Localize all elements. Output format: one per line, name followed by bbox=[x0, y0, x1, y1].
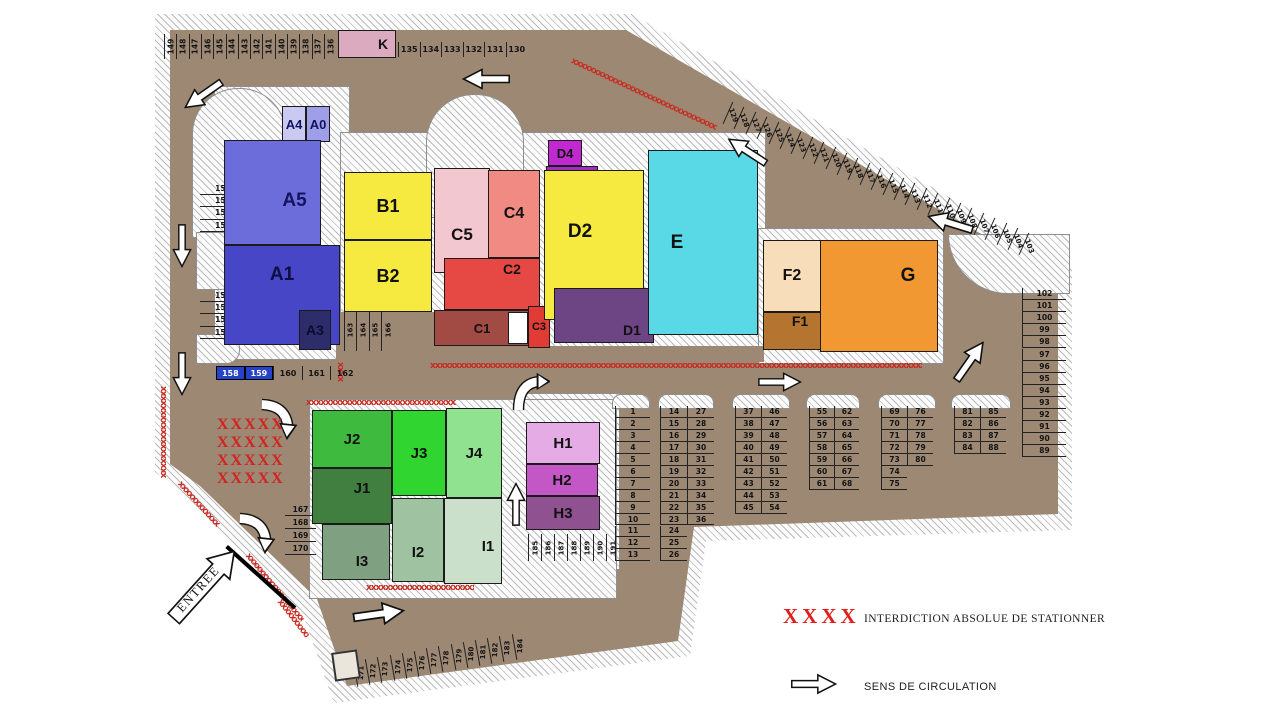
parking-spot-146: 146 bbox=[201, 34, 213, 59]
parking-spot-132: 132 bbox=[463, 42, 485, 57]
parking-spot-158: 158 bbox=[216, 366, 245, 380]
parking-spot-69: 69 bbox=[881, 406, 907, 418]
parking-spot-134: 134 bbox=[420, 42, 442, 57]
parking-spot-24: 24 bbox=[660, 526, 687, 538]
parking-spot-170: 170 bbox=[285, 542, 316, 555]
parking-spot-14: 14 bbox=[660, 406, 687, 418]
building-E: E bbox=[648, 150, 758, 335]
building-label: C1 bbox=[474, 321, 491, 336]
parking-spot-37: 37 bbox=[735, 406, 761, 418]
building-K: K bbox=[338, 30, 396, 58]
parking-spot-9: 9 bbox=[615, 502, 650, 514]
building-label: F1 bbox=[792, 313, 808, 329]
parking-spot-93: 93 bbox=[1022, 397, 1066, 409]
parking-spot-17: 17 bbox=[660, 442, 687, 454]
parking-spot-140: 140 bbox=[275, 34, 287, 59]
parking-spot-38: 38 bbox=[735, 418, 761, 430]
building-H2: H2 bbox=[526, 464, 598, 496]
parking-spot-31: 31 bbox=[687, 454, 714, 466]
parking-spot-130: 130 bbox=[506, 42, 528, 57]
parking-spot-67: 67 bbox=[834, 466, 859, 478]
building-label: F2 bbox=[783, 267, 802, 285]
parking-spot-56: 56 bbox=[809, 418, 834, 430]
parking-spot-137: 137 bbox=[312, 34, 324, 59]
parking-spot-44: 44 bbox=[735, 490, 761, 502]
parking-spot-51: 51 bbox=[761, 466, 787, 478]
building-A5: A5 bbox=[224, 140, 321, 245]
parking-spot-19: 19 bbox=[660, 466, 687, 478]
parking-spot-29: 29 bbox=[687, 430, 714, 442]
no-parking-text-row: XXXXX bbox=[217, 452, 285, 470]
parking-spot-18: 18 bbox=[660, 454, 687, 466]
building-label: A5 bbox=[282, 190, 306, 212]
direction-arrow-icon bbox=[791, 672, 837, 696]
parking-spot-141: 141 bbox=[262, 34, 274, 59]
parking-spot-36: 36 bbox=[687, 514, 714, 526]
parking-spot-62: 62 bbox=[834, 406, 859, 418]
parking-spot-55: 55 bbox=[809, 406, 834, 418]
parking-spot-35: 35 bbox=[687, 502, 714, 514]
parking-spot-87: 87 bbox=[980, 430, 1006, 442]
parking-spot-84: 84 bbox=[954, 442, 980, 454]
building-label: J2 bbox=[344, 431, 361, 448]
parking-spot-185: 185 bbox=[528, 534, 541, 561]
parking-spot-40: 40 bbox=[735, 442, 761, 454]
building-label: I1 bbox=[482, 538, 495, 555]
building-label: D1 bbox=[623, 322, 641, 338]
parking-spot-12: 12 bbox=[615, 537, 650, 549]
parking-spot-163: 163 bbox=[344, 309, 356, 351]
building-J4: J4 bbox=[446, 408, 502, 498]
parking-spot-162: 162 bbox=[330, 366, 359, 380]
parking-spot-72: 72 bbox=[881, 442, 907, 454]
building-C4: C4 bbox=[488, 170, 540, 258]
parking-spot-45: 45 bbox=[735, 502, 761, 514]
parking-spot-27: 27 bbox=[687, 406, 714, 418]
parking-spot-77: 77 bbox=[907, 418, 933, 430]
building-label: C3 bbox=[532, 321, 546, 333]
parking-spot-21: 21 bbox=[660, 490, 687, 502]
parking-spot-89: 89 bbox=[1022, 445, 1066, 457]
parking-spot-39: 39 bbox=[735, 430, 761, 442]
parking-spot-88: 88 bbox=[980, 442, 1006, 454]
parking-spot-71: 71 bbox=[881, 430, 907, 442]
parking-spot-131: 131 bbox=[484, 42, 506, 57]
building-J3: J3 bbox=[392, 410, 446, 496]
legend-direction-label: SENS DE CIRCULATION bbox=[864, 681, 997, 693]
parking-spot-32: 32 bbox=[687, 466, 714, 478]
parking-spot-5: 5 bbox=[615, 454, 650, 466]
no-parking-mark: xxxxxxxxxxxxxxxxxxxxxxxxxxxxxxxxxxxxxxxx… bbox=[430, 362, 922, 371]
parking-spot-57: 57 bbox=[809, 430, 834, 442]
parking-spot-49: 49 bbox=[761, 442, 787, 454]
building-G: G bbox=[820, 240, 938, 352]
parking-spot-28: 28 bbox=[687, 418, 714, 430]
parking-spot-22: 22 bbox=[660, 502, 687, 514]
parking-spot-190: 190 bbox=[593, 534, 606, 561]
building-C2: C2 bbox=[444, 258, 540, 310]
parking-spot-90: 90 bbox=[1022, 433, 1066, 445]
direction-arrow-icon bbox=[506, 476, 526, 532]
parking-spot-58: 58 bbox=[809, 442, 834, 454]
building-label: D2 bbox=[568, 221, 592, 243]
building-label: A4 bbox=[286, 117, 303, 132]
parking-spot-52: 52 bbox=[761, 478, 787, 490]
parking-spot-78: 78 bbox=[907, 430, 933, 442]
parking-spot-91: 91 bbox=[1022, 421, 1066, 433]
parking-spot-81: 81 bbox=[954, 406, 980, 418]
parking-spot-8: 8 bbox=[615, 490, 650, 502]
parking-spot-79: 79 bbox=[907, 442, 933, 454]
no-parking-text-row: XXXXX bbox=[217, 434, 285, 452]
building-J2: J2 bbox=[312, 410, 392, 468]
parking-spot-1: 1 bbox=[615, 406, 650, 418]
building-A3: A3 bbox=[299, 310, 331, 350]
kiosk-structure bbox=[331, 649, 361, 681]
parking-spot-2: 2 bbox=[615, 418, 650, 430]
parking-spot-97: 97 bbox=[1022, 349, 1066, 361]
building-D1: D1 bbox=[554, 288, 654, 343]
parking-spot-48: 48 bbox=[761, 430, 787, 442]
parking-spot-53: 53 bbox=[761, 490, 787, 502]
parking-spot-23: 23 bbox=[660, 514, 687, 526]
building-label: B1 bbox=[376, 196, 399, 217]
building-F2: F2 bbox=[763, 240, 821, 312]
parking-spot-54: 54 bbox=[761, 502, 787, 514]
parking-spot-74: 74 bbox=[881, 466, 907, 478]
building-label: C5 bbox=[451, 225, 473, 245]
building-GAP bbox=[508, 312, 528, 344]
parking-spot-100: 100 bbox=[1022, 312, 1066, 324]
parking-spot-75: 75 bbox=[881, 478, 907, 490]
building-label: J3 bbox=[411, 445, 428, 462]
parking-spot-43: 43 bbox=[735, 478, 761, 490]
no-parking-mark: xxxxxxxxxxxxxxxxxxxxxxxxxxxxxxxxxx bbox=[306, 399, 456, 408]
parking-spot-92: 92 bbox=[1022, 409, 1066, 421]
building-H3: H3 bbox=[526, 496, 600, 530]
parking-spot-138: 138 bbox=[299, 34, 311, 59]
building-I3: I3 bbox=[322, 524, 390, 580]
parking-spot-26: 26 bbox=[660, 549, 687, 561]
parking-spot-160: 160 bbox=[273, 366, 302, 380]
building-B1: B1 bbox=[344, 172, 432, 240]
parking-spot-10: 10 bbox=[615, 514, 650, 526]
building-label: I3 bbox=[356, 553, 369, 570]
building-B2: B2 bbox=[344, 240, 432, 312]
parking-spot-101: 101 bbox=[1022, 300, 1066, 312]
parking-spot-85: 85 bbox=[980, 406, 1006, 418]
parking-spot-25: 25 bbox=[660, 537, 687, 549]
direction-arrow-icon bbox=[508, 370, 550, 412]
parking-spot-61: 61 bbox=[809, 478, 834, 490]
parking-spot-102: 102 bbox=[1022, 288, 1066, 300]
parking-spot-142: 142 bbox=[250, 34, 262, 59]
parking-spot-16: 16 bbox=[660, 430, 687, 442]
legend-no-parking-label: INTERDICTION ABSOLUE DE STATIONNER bbox=[864, 613, 1105, 625]
building-label: C2 bbox=[503, 261, 521, 277]
parking-spot-30: 30 bbox=[687, 442, 714, 454]
parking-spot-187: 187 bbox=[554, 534, 567, 561]
building-label: H1 bbox=[553, 435, 572, 452]
parking-spot-34: 34 bbox=[687, 490, 714, 502]
building-A0: A0 bbox=[306, 106, 330, 142]
building-I2: I2 bbox=[392, 498, 444, 582]
parking-spot-76: 76 bbox=[907, 406, 933, 418]
parking-spot-165: 165 bbox=[369, 309, 381, 351]
parking-spot-70: 70 bbox=[881, 418, 907, 430]
no-parking-text-row: XXXXX bbox=[217, 416, 285, 434]
parking-spot-166: 166 bbox=[381, 309, 393, 351]
building-label: E bbox=[671, 232, 684, 254]
parking-spot-11: 11 bbox=[615, 526, 650, 538]
building-label: H2 bbox=[552, 472, 571, 489]
building-J1: J1 bbox=[312, 468, 392, 524]
direction-arrow-icon bbox=[172, 352, 192, 396]
parking-spot-80: 80 bbox=[907, 454, 933, 466]
parking-spot-4: 4 bbox=[615, 442, 650, 454]
parking-spot-63: 63 bbox=[834, 418, 859, 430]
parking-spot-136: 136 bbox=[324, 34, 336, 59]
parking-spot-95: 95 bbox=[1022, 373, 1066, 385]
building-label: A1 bbox=[270, 264, 294, 286]
building-label: K bbox=[378, 36, 388, 52]
building-label: I2 bbox=[412, 544, 425, 561]
parking-spot-161: 161 bbox=[302, 366, 331, 380]
no-parking-mark: xxxxxxxxxxxxxxxxxxxxxxxx bbox=[366, 584, 474, 593]
no-parking-mark: xxxxxxxxxxxxxxxxxxxxx bbox=[158, 386, 167, 478]
road-under-c1 bbox=[430, 346, 764, 362]
building-I1: I1 bbox=[444, 498, 502, 584]
parking-spot-94: 94 bbox=[1022, 385, 1066, 397]
parking-spot-15: 15 bbox=[660, 418, 687, 430]
parking-spot-133: 133 bbox=[441, 42, 463, 57]
building-label: J4 bbox=[466, 445, 483, 462]
building-label: A0 bbox=[310, 117, 327, 132]
building-label: C4 bbox=[504, 205, 524, 223]
no-parking-text-row: XXXXX bbox=[217, 470, 285, 488]
parking-spot-33: 33 bbox=[687, 478, 714, 490]
parking-spot-143: 143 bbox=[238, 34, 250, 59]
building-label: B2 bbox=[376, 266, 399, 287]
parking-spot-46: 46 bbox=[761, 406, 787, 418]
parking-spot-98: 98 bbox=[1022, 336, 1066, 348]
building-A4: A4 bbox=[282, 106, 306, 142]
parking-spot-169: 169 bbox=[285, 529, 316, 542]
parking-spot-149: 149 bbox=[164, 34, 176, 59]
parking-spot-7: 7 bbox=[615, 478, 650, 490]
parking-spot-82: 82 bbox=[954, 418, 980, 430]
parking-spot-144: 144 bbox=[226, 34, 238, 59]
parking-spot-73: 73 bbox=[881, 454, 907, 466]
direction-arrow-icon bbox=[758, 372, 802, 392]
parking-spot-135: 135 bbox=[398, 42, 420, 57]
site-plan: xxxxxxxxxxxxxxxxxxxxxxxxxxxxxxxxxxxxxxxx… bbox=[0, 0, 1280, 720]
parking-spot-64: 64 bbox=[834, 430, 859, 442]
parking-spot-186: 186 bbox=[541, 534, 554, 561]
direction-arrow-icon bbox=[236, 506, 284, 556]
parking-spot-139: 139 bbox=[287, 34, 299, 59]
parking-spot-68: 68 bbox=[834, 478, 859, 490]
building-label: H3 bbox=[553, 505, 572, 522]
parking-spot-99: 99 bbox=[1022, 324, 1066, 336]
parking-spot-83: 83 bbox=[954, 430, 980, 442]
parking-spot-6: 6 bbox=[615, 466, 650, 478]
parking-spot-147: 147 bbox=[189, 34, 201, 59]
direction-arrow-icon bbox=[462, 68, 510, 90]
parking-spot-159: 159 bbox=[245, 366, 274, 380]
building-F1: F1 bbox=[763, 312, 821, 350]
building-D4: D4 bbox=[548, 140, 582, 166]
parking-spot-59: 59 bbox=[809, 454, 834, 466]
legend-no-parking-symbol: XXXX bbox=[783, 604, 860, 629]
parking-spot-3: 3 bbox=[615, 430, 650, 442]
parking-spot-148: 148 bbox=[176, 34, 188, 59]
parking-spot-145: 145 bbox=[213, 34, 225, 59]
parking-spot-60: 60 bbox=[809, 466, 834, 478]
parking-spot-188: 188 bbox=[567, 534, 580, 561]
building-H1: H1 bbox=[526, 422, 600, 464]
parking-spot-66: 66 bbox=[834, 454, 859, 466]
parking-spot-164: 164 bbox=[356, 309, 368, 351]
building-label: D4 bbox=[557, 146, 574, 161]
building-label: G bbox=[901, 265, 916, 287]
parking-spot-47: 47 bbox=[761, 418, 787, 430]
building-label: A3 bbox=[306, 322, 324, 338]
parking-spot-65: 65 bbox=[834, 442, 859, 454]
parking-spot-42: 42 bbox=[735, 466, 761, 478]
parking-spot-13: 13 bbox=[615, 549, 650, 561]
parking-spot-96: 96 bbox=[1022, 361, 1066, 373]
parking-spot-41: 41 bbox=[735, 454, 761, 466]
building-label: J1 bbox=[354, 480, 371, 497]
direction-arrow-icon bbox=[172, 224, 192, 268]
parking-spot-20: 20 bbox=[660, 478, 687, 490]
parking-spot-189: 189 bbox=[580, 534, 593, 561]
parking-spot-50: 50 bbox=[761, 454, 787, 466]
parking-spot-86: 86 bbox=[980, 418, 1006, 430]
